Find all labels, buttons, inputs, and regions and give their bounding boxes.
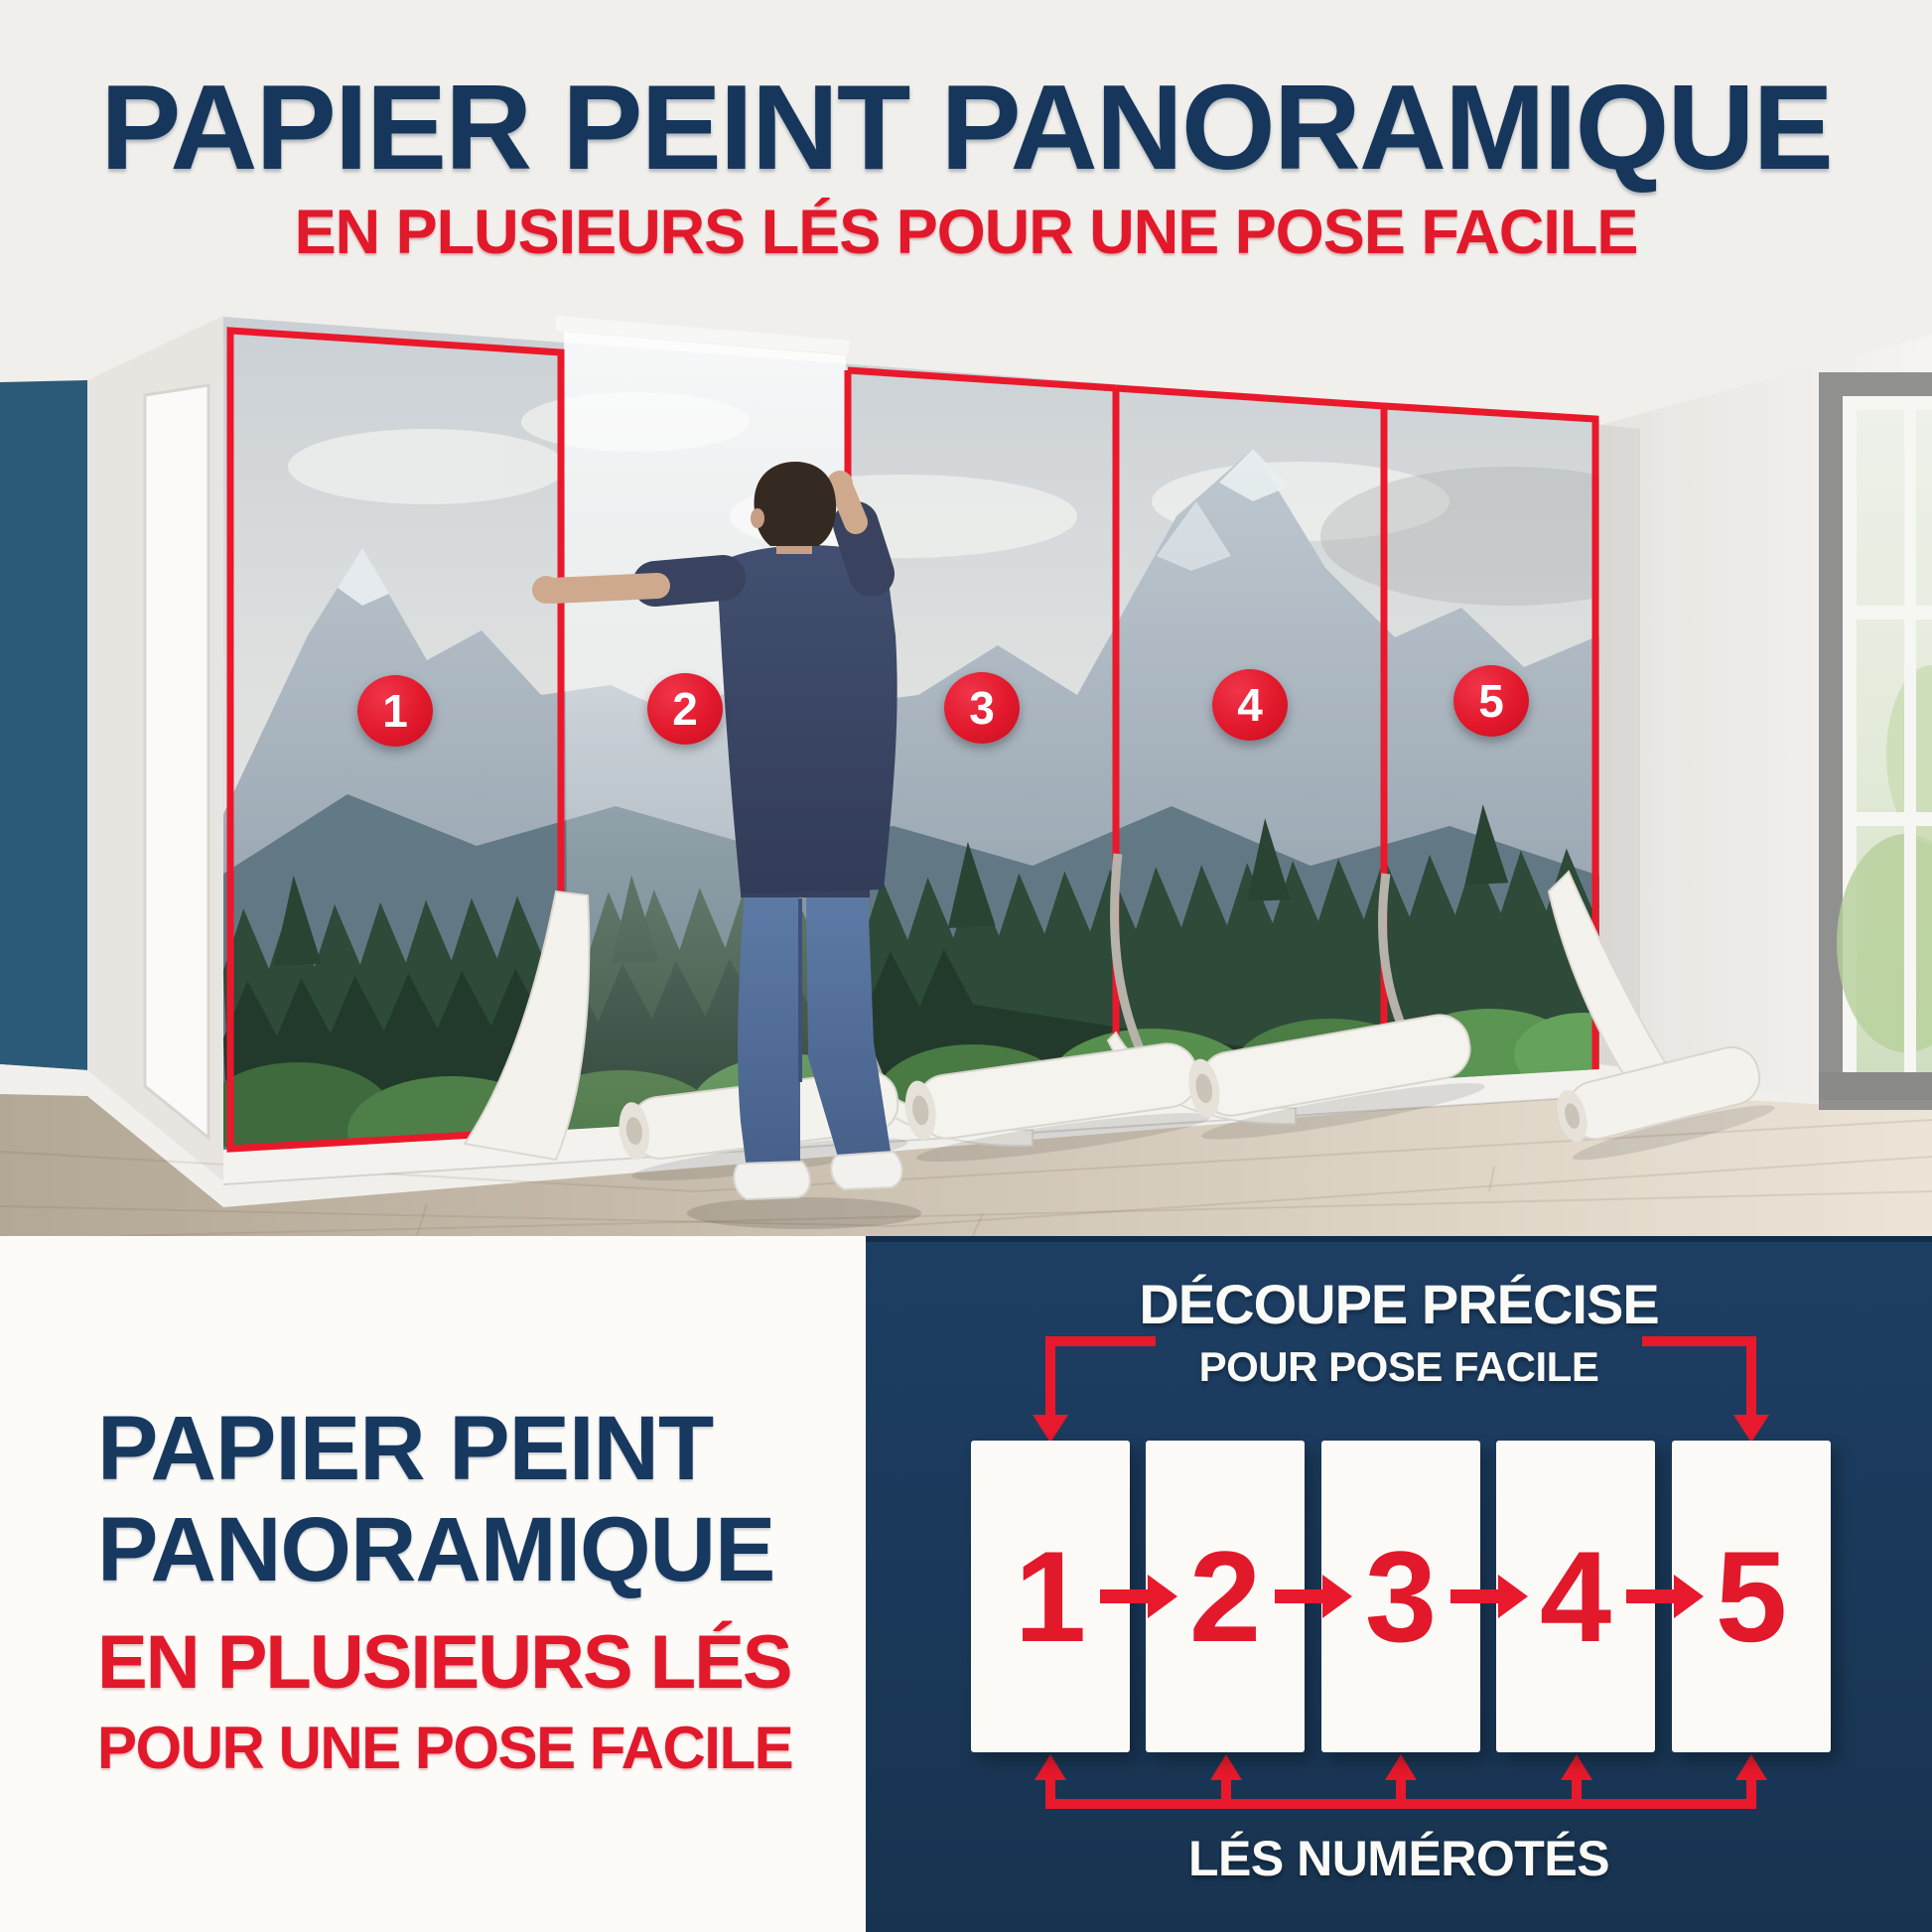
- arrow-right-icon: [1100, 1575, 1177, 1618]
- strip-badge-2-number: 2: [672, 682, 698, 736]
- accent-wall: [0, 380, 87, 1070]
- diagram-strip-1-number: 1: [1015, 1522, 1086, 1671]
- arrow-right-icon: [1275, 1575, 1352, 1618]
- diagram-strip-2-number: 2: [1189, 1522, 1261, 1671]
- strip-badge-5-number: 5: [1478, 674, 1504, 728]
- strip-badge-4: 4: [1212, 669, 1288, 741]
- strips-diagram: DÉCOUPE PRÉCISE POUR POSE FACILE: [866, 1236, 1932, 1932]
- diagram-strip-4-number: 4: [1540, 1522, 1611, 1671]
- poster-subtitle: EN PLUSIEURS LÉS POUR UNE POSE FACILE: [0, 197, 1932, 268]
- strip-badge-1: 1: [357, 675, 433, 747]
- diagram-strip-3-number: 3: [1365, 1522, 1437, 1671]
- strip-badge-2: 2: [647, 673, 723, 745]
- arrow-right-icon: [1626, 1575, 1704, 1618]
- bottom-left-panel: PAPIER PEINT PANORAMIQUE EN PLUSIEURS LÉ…: [0, 1236, 866, 1932]
- bl-subtitle-line1: EN PLUSIEURS LÉS: [97, 1625, 791, 1701]
- strip-badge-1-number: 1: [382, 684, 408, 738]
- door: [145, 385, 208, 1138]
- strip-badge-3: 3: [944, 672, 1020, 744]
- arrow-down-icon: [1733, 1415, 1769, 1443]
- strip-badge-3-number: 3: [969, 681, 995, 735]
- room-photo: PAPIER PEINT PANORAMIQUE EN PLUSIEURS LÉ…: [0, 0, 1932, 1236]
- strip-badge-5: 5: [1453, 665, 1529, 737]
- poster: PAPIER PEINT PANORAMIQUE EN PLUSIEURS LÉ…: [0, 0, 1932, 1932]
- poster-title: PAPIER PEINT PANORAMIQUE: [0, 58, 1932, 197]
- arrow-down-icon: [1033, 1415, 1068, 1443]
- mountain-mural: [204, 298, 1729, 1191]
- bl-title-line1: PAPIER PEINT: [97, 1403, 713, 1494]
- diagram-footer-label: LÉS NUMÉROTÉS: [866, 1830, 1932, 1887]
- bl-title-line2: PANORAMIQUE: [97, 1504, 774, 1595]
- window: [1819, 372, 1932, 1110]
- bl-subtitle-line2: POUR UNE POSE FACILE: [97, 1719, 792, 1778]
- arrow-up-icons: [1035, 1754, 1767, 1780]
- diagram-strip-5-number: 5: [1716, 1522, 1787, 1671]
- strip-badge-4-number: 4: [1237, 678, 1263, 732]
- arrow-right-icon: [1450, 1575, 1528, 1618]
